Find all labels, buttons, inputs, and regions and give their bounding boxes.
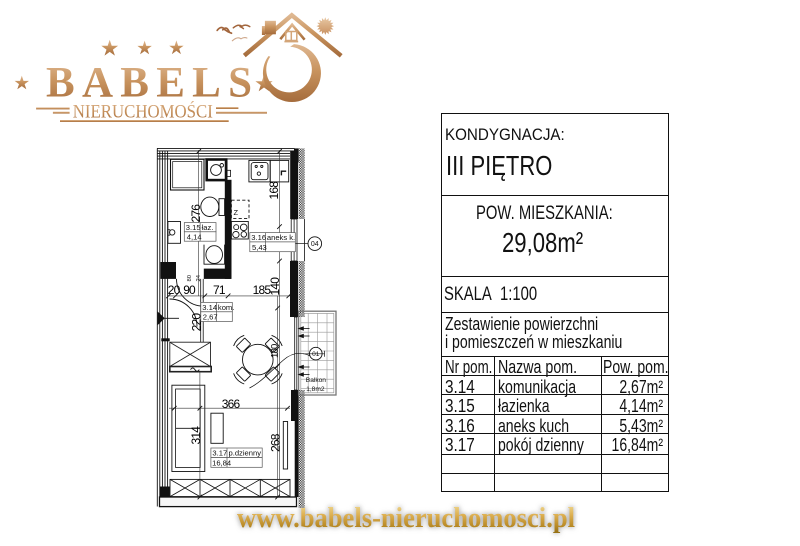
svg-text:2,67: 2,67 (203, 313, 218, 322)
svg-text:1,8m2: 1,8m2 (306, 386, 325, 393)
svg-text:20: 20 (168, 283, 181, 297)
svg-text:5,43: 5,43 (252, 243, 267, 252)
svg-text:180: 180 (270, 344, 281, 358)
svg-text:276: 276 (189, 204, 203, 223)
svg-text:3.15: 3.15 (186, 223, 201, 232)
svg-text:www.babels-nieruchomosci.pl: www.babels-nieruchomosci.pl (237, 503, 575, 534)
svg-text:kom.: kom. (218, 303, 234, 312)
svg-text:04: 04 (311, 241, 319, 248)
svg-text:01: 01 (312, 351, 320, 358)
svg-text:90: 90 (183, 283, 196, 297)
svg-text:140: 140 (268, 277, 282, 296)
svg-text:aneks k.: aneks k. (267, 233, 295, 242)
svg-text:3.17: 3.17 (212, 449, 227, 458)
svg-text:71: 71 (213, 283, 226, 297)
svg-text:Z: Z (234, 208, 239, 217)
svg-text:Balkon: Balkon (306, 377, 326, 384)
svg-text:314: 314 (189, 426, 203, 445)
svg-text:80: 80 (187, 275, 193, 281)
svg-text:366: 366 (222, 397, 241, 411)
svg-text:16,84: 16,84 (212, 458, 231, 467)
svg-text:24: 24 (196, 274, 202, 281)
svg-text:4,14: 4,14 (187, 233, 202, 242)
svg-text:3.14: 3.14 (202, 303, 217, 312)
svg-text:268: 268 (268, 433, 282, 452)
svg-text:p.dzienny: p.dzienny (229, 449, 262, 458)
svg-text:168: 168 (267, 181, 281, 200)
svg-text:łaz.: łaz. (202, 223, 214, 232)
svg-text:3.16: 3.16 (251, 233, 266, 242)
svg-text:NIERUCHOMOŚCI: NIERUCHOMOŚCI (73, 100, 213, 122)
svg-text:BABELS: BABELS (46, 60, 252, 107)
